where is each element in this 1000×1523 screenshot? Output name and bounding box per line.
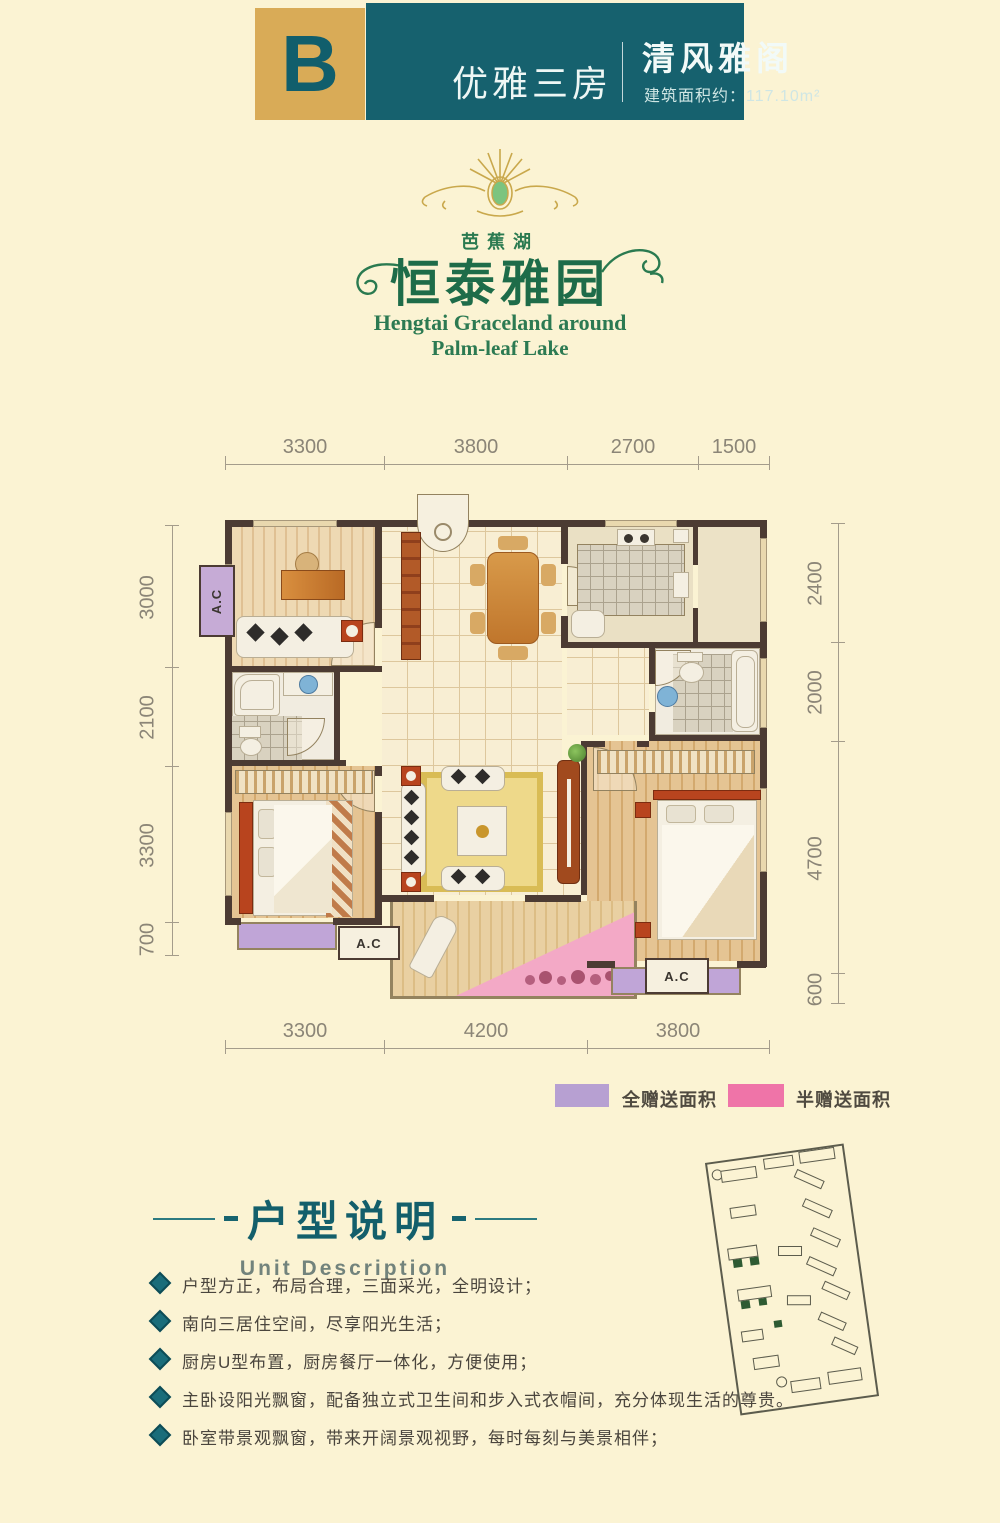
legend-label-full: 全赠送面积 [622, 1086, 717, 1112]
corner-table [401, 872, 421, 892]
toilet [239, 726, 261, 738]
header-divider [622, 42, 623, 102]
ironing-board [408, 913, 460, 980]
window-icon [760, 538, 767, 622]
toilet-bowl [240, 738, 262, 756]
ac-unit: A.C [199, 565, 235, 637]
bullet-item: 户型方正，布局合理，三面采光，全明设计； [152, 1272, 812, 1297]
bedside-table [635, 802, 651, 818]
title-line-right [475, 1218, 537, 1220]
block-letter: B [281, 24, 339, 104]
diamond-icon [149, 1386, 172, 1409]
appliance [673, 529, 689, 543]
header-block-badge: B [255, 8, 365, 120]
chair [470, 564, 485, 586]
logo-brand-name: 恒泰雅园 [0, 244, 1000, 316]
sink [299, 675, 318, 694]
plant-icon [568, 744, 586, 762]
bed-frame [653, 790, 761, 800]
logo-english-line2: Palm-leaf Lake [0, 336, 1000, 361]
unit-description-title: 户型说明 [247, 1188, 443, 1249]
chair [541, 564, 556, 586]
chair [541, 612, 556, 634]
kitchen-sink [571, 610, 605, 638]
toilet [677, 652, 703, 662]
header-unit-name: 清风雅阁 [642, 32, 794, 80]
toilet-bowl [679, 662, 704, 683]
diamond-icon [149, 1310, 172, 1333]
title-dash-right [452, 1216, 466, 1221]
chair [498, 646, 528, 660]
floor-plan: A.C A.C A.C [225, 520, 770, 1015]
window-icon [225, 812, 232, 896]
bed [253, 800, 353, 916]
window-icon [253, 520, 337, 527]
entry-fan-cabinet [417, 494, 469, 552]
bed [657, 800, 757, 940]
legend-swatch-half [728, 1084, 784, 1107]
side-table [341, 620, 363, 642]
unit-description-bullets: 户型方正，布局合理，三面采光，全明设计； 南向三居住空间，尽享阳光生活； 厨房U… [152, 1272, 812, 1462]
stove [617, 529, 655, 546]
entry-cabinet [401, 532, 421, 660]
bed-frame [239, 802, 253, 914]
ac-unit: A.C [338, 926, 400, 960]
unit-description-header: 户型说明 Unit Description [95, 1188, 595, 1281]
appliance [673, 572, 689, 598]
flower-box [523, 969, 618, 989]
bay-window-bedroom2 [237, 922, 337, 950]
window-icon [760, 658, 767, 728]
logo-swirl-right-icon [598, 240, 668, 290]
header-area: 建筑面积约：117.10m² [644, 82, 820, 106]
dining-table [487, 552, 539, 644]
balcony [390, 901, 637, 999]
window-icon [605, 520, 677, 527]
title-dash-left [224, 1216, 238, 1221]
coffee-table [457, 806, 507, 856]
wardrobe [235, 770, 373, 794]
brand-crest-icon [415, 145, 585, 227]
title-line-left [153, 1218, 215, 1220]
corridor-floor [567, 648, 649, 735]
kitchen-counter [577, 544, 685, 616]
bullet-item: 厨房U型布置，厨房餐厅一体化，方便使用； [152, 1348, 812, 1373]
logo-english-line1: Hengtai Graceland around [0, 310, 1000, 336]
tv-cabinet [557, 760, 580, 884]
diamond-icon [149, 1348, 172, 1371]
bullet-item: 主卧设阳光飘窗，配备独立式卫生间和步入式衣帽间，充分体现生活的尊贵。 [152, 1386, 812, 1411]
sink [657, 686, 678, 707]
bullet-item: 南向三居住空间，尽享阳光生活； [152, 1310, 812, 1335]
bathtub [731, 650, 758, 732]
diamond-icon [149, 1424, 172, 1447]
legend-label-half: 半赠送面积 [796, 1086, 891, 1112]
bullet-item: 卧室带景观飘窗，带来开阔景观视野，每时每刻与美景相伴； [152, 1424, 812, 1449]
corner-table [401, 766, 421, 786]
utility-strip-floor [698, 527, 760, 642]
bedside-table [635, 922, 651, 938]
bathtub [234, 674, 280, 716]
sofa-top [441, 766, 505, 791]
walk-in-closet [597, 750, 755, 774]
ac-unit: A.C [645, 958, 709, 994]
desk [281, 570, 345, 600]
diamond-icon [149, 1272, 172, 1295]
window-icon [760, 788, 767, 872]
chair [498, 536, 528, 550]
header-unit-type: 优雅三房 [452, 55, 612, 107]
chair [470, 612, 485, 634]
sofa-bottom [441, 866, 505, 891]
legend-swatch-full [555, 1084, 609, 1107]
